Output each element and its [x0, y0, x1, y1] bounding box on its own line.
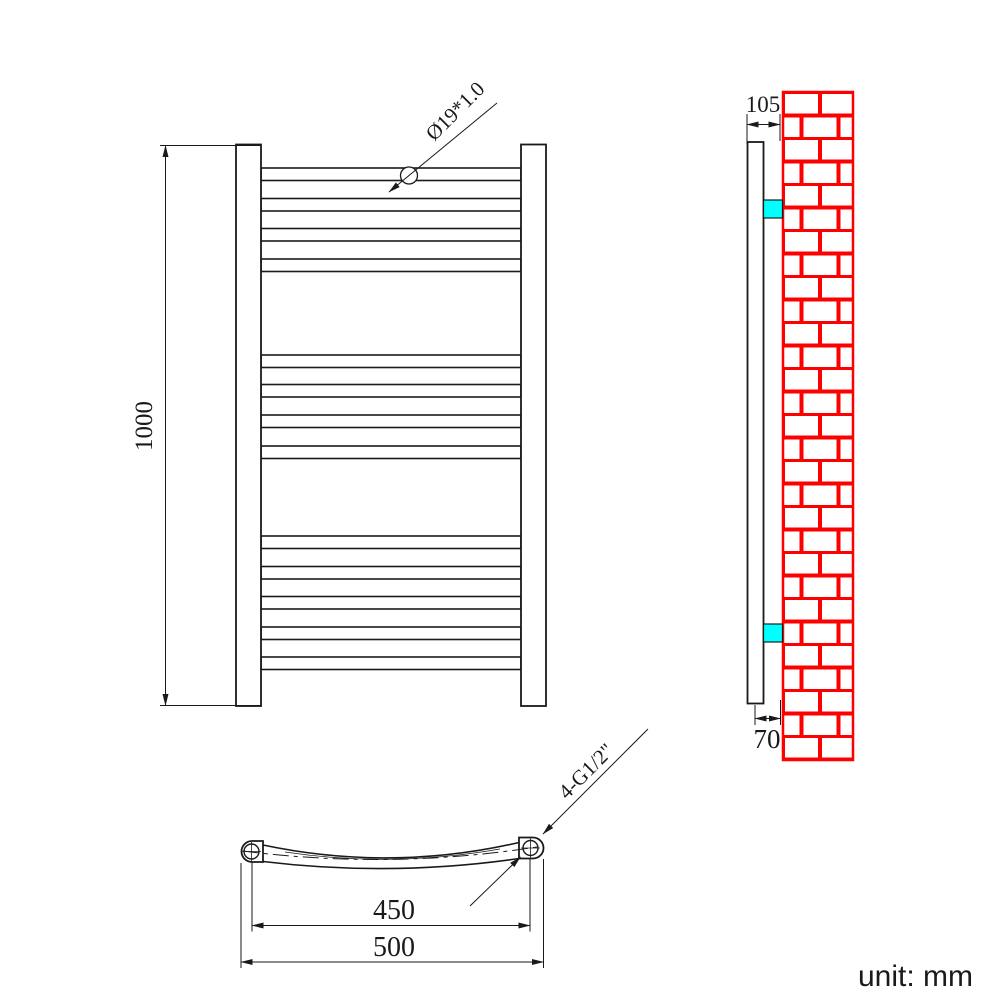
unit-note: unit: mm — [858, 960, 973, 993]
dim-label-height: 1000 — [131, 401, 158, 451]
tube-rung — [261, 657, 521, 670]
bottom-view: 4-G1/2" 450 500 — [241, 729, 648, 968]
tube-rung — [261, 567, 521, 580]
wall-bracket-top — [764, 200, 783, 218]
dim-center-depth-70: 70 — [754, 700, 781, 754]
tube-rung — [261, 627, 521, 640]
wall-bracket-bottom — [764, 624, 783, 642]
tube-rung — [261, 199, 521, 212]
tube-group-top — [261, 168, 521, 272]
right-post — [521, 145, 546, 707]
left-post — [236, 145, 261, 707]
tube-rung — [261, 597, 521, 610]
tube-rung — [261, 229, 521, 242]
tube-rung — [261, 446, 521, 459]
brick-wall — [783, 92, 853, 760]
side-view: 105 70 — [746, 92, 853, 760]
thread-spec-label: 4-G1/2" — [553, 738, 618, 803]
tube-group-middle — [261, 355, 521, 459]
towel-rail-drawing: 1000 Ø19*1.0 105 70 — [0, 0, 1001, 1001]
tube-rung — [261, 415, 521, 428]
tube-rung — [261, 355, 521, 368]
dim-label-overall: 500 — [373, 932, 415, 963]
tube-rung — [261, 259, 521, 272]
dim-label-depth: 105 — [746, 92, 781, 117]
tube-group-bottom — [261, 536, 521, 670]
technical-drawing-page: 1000 Ø19*1.0 105 70 — [0, 0, 1001, 1001]
tube-rung — [261, 168, 521, 181]
leader-thread-spec: 4-G1/2" — [470, 729, 648, 906]
dim-depth-105: 105 — [746, 92, 781, 144]
dim-label-center-depth: 70 — [754, 724, 781, 754]
rail-profile — [748, 142, 764, 704]
tube-rung — [261, 385, 521, 398]
dim-label-centers: 450 — [373, 895, 415, 926]
front-view: 1000 Ø19*1.0 — [131, 77, 546, 706]
tube-rung — [261, 536, 521, 549]
tube-spec-label: Ø19*1.0 — [421, 77, 490, 146]
